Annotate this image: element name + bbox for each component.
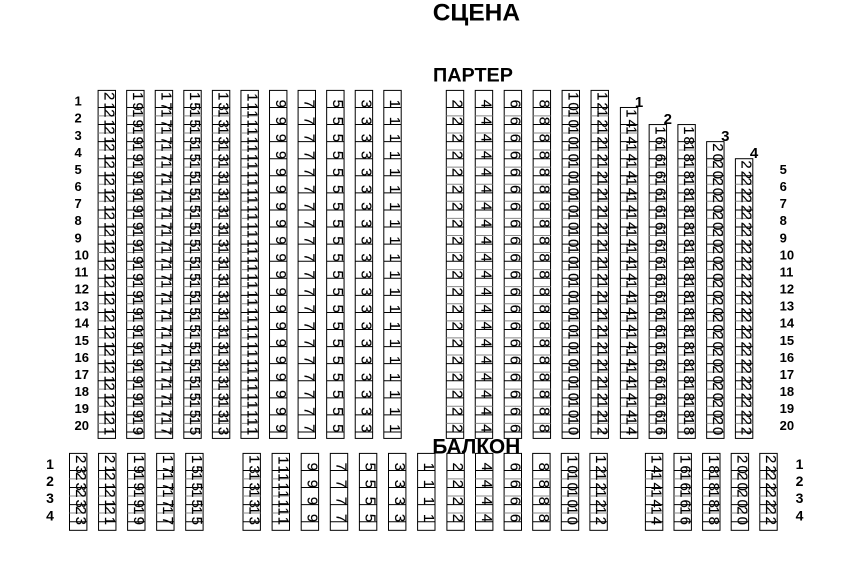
svg-text:16: 16: [651, 417, 668, 438]
svg-text:7: 7: [300, 168, 317, 178]
svg-text:9: 9: [272, 185, 289, 195]
svg-text:4: 4: [750, 145, 759, 162]
svg-text:7: 7: [333, 480, 350, 490]
svg-text:7: 7: [333, 463, 350, 473]
svg-text:6: 6: [507, 253, 524, 263]
svg-text:7: 7: [300, 185, 317, 195]
svg-text:6: 6: [507, 356, 524, 366]
svg-text:5: 5: [362, 463, 379, 473]
svg-text:4: 4: [478, 407, 495, 417]
svg-text:18: 18: [705, 506, 722, 527]
svg-text:9: 9: [272, 117, 289, 127]
svg-text:4: 4: [478, 463, 495, 473]
svg-text:5: 5: [75, 162, 82, 177]
svg-text:5: 5: [329, 322, 346, 332]
svg-text:2: 2: [449, 134, 466, 144]
svg-text:19: 19: [129, 417, 146, 438]
svg-text:6: 6: [507, 219, 524, 229]
svg-text:2: 2: [449, 356, 466, 366]
svg-text:4: 4: [478, 373, 495, 383]
svg-text:5: 5: [329, 390, 346, 400]
svg-text:2: 2: [449, 322, 466, 332]
svg-text:6: 6: [507, 100, 524, 110]
svg-text:3: 3: [46, 490, 54, 506]
svg-text:9: 9: [272, 270, 289, 280]
svg-text:9: 9: [272, 168, 289, 178]
svg-text:1: 1: [386, 117, 403, 127]
svg-text:17: 17: [780, 367, 794, 382]
svg-text:3: 3: [75, 128, 82, 143]
svg-text:9: 9: [272, 407, 289, 417]
svg-text:1: 1: [635, 94, 643, 111]
svg-text:2: 2: [46, 473, 54, 489]
svg-text:6: 6: [507, 151, 524, 161]
svg-text:1: 1: [386, 390, 403, 400]
svg-text:2: 2: [449, 390, 466, 400]
svg-text:4: 4: [796, 507, 804, 523]
svg-text:9: 9: [272, 100, 289, 110]
svg-text:1: 1: [796, 456, 804, 472]
svg-text:1: 1: [386, 236, 403, 246]
svg-text:1: 1: [386, 100, 403, 110]
svg-text:4: 4: [478, 219, 495, 229]
svg-text:4: 4: [478, 480, 495, 490]
svg-text:19: 19: [130, 506, 147, 527]
svg-text:11: 11: [780, 264, 794, 279]
svg-text:16: 16: [780, 350, 794, 365]
svg-text:7: 7: [300, 236, 317, 246]
svg-text:7: 7: [300, 219, 317, 229]
svg-text:5: 5: [329, 424, 346, 434]
svg-text:4: 4: [478, 288, 495, 298]
svg-text:4: 4: [478, 168, 495, 178]
svg-text:2: 2: [449, 424, 466, 434]
svg-text:7: 7: [300, 253, 317, 263]
svg-text:5: 5: [329, 202, 346, 212]
svg-text:7: 7: [300, 407, 317, 417]
svg-text:4: 4: [478, 339, 495, 349]
svg-text:3: 3: [358, 185, 375, 195]
svg-text:2: 2: [449, 270, 466, 280]
svg-text:9: 9: [272, 134, 289, 144]
svg-text:3: 3: [358, 407, 375, 417]
svg-text:7: 7: [300, 151, 317, 161]
svg-text:7: 7: [300, 305, 317, 315]
svg-text:9: 9: [272, 339, 289, 349]
svg-text:3: 3: [358, 134, 375, 144]
svg-text:1: 1: [46, 456, 54, 472]
svg-text:5: 5: [329, 373, 346, 383]
svg-text:4: 4: [478, 100, 495, 110]
svg-text:5: 5: [329, 151, 346, 161]
svg-text:4: 4: [478, 236, 495, 246]
svg-text:3: 3: [358, 236, 375, 246]
svg-text:12: 12: [75, 282, 89, 297]
svg-text:6: 6: [507, 424, 524, 434]
svg-text:2: 2: [449, 407, 466, 417]
svg-text:14: 14: [780, 316, 795, 331]
svg-text:4: 4: [478, 424, 495, 434]
svg-text:8: 8: [535, 168, 552, 178]
svg-text:3: 3: [721, 128, 729, 145]
svg-text:14: 14: [623, 417, 640, 438]
svg-text:5: 5: [329, 253, 346, 263]
svg-text:8: 8: [535, 424, 552, 434]
svg-text:3: 3: [358, 339, 375, 349]
svg-text:9: 9: [304, 463, 321, 473]
svg-text:7: 7: [75, 196, 82, 211]
svg-text:1: 1: [386, 151, 403, 161]
svg-text:8: 8: [535, 100, 552, 110]
svg-text:10: 10: [780, 247, 794, 262]
svg-text:18: 18: [780, 384, 794, 399]
svg-text:6: 6: [507, 168, 524, 178]
svg-text:14: 14: [75, 316, 90, 331]
svg-text:8: 8: [535, 497, 552, 507]
svg-text:3: 3: [358, 424, 375, 434]
svg-text:22: 22: [738, 417, 755, 438]
svg-text:3: 3: [358, 253, 375, 263]
svg-text:8: 8: [535, 339, 552, 349]
svg-text:5: 5: [329, 134, 346, 144]
svg-text:3: 3: [358, 219, 375, 229]
svg-text:20: 20: [75, 418, 89, 433]
svg-text:6: 6: [506, 514, 523, 524]
svg-text:8: 8: [535, 514, 552, 524]
svg-text:12: 12: [780, 282, 794, 297]
svg-text:5: 5: [329, 100, 346, 110]
svg-text:8: 8: [535, 373, 552, 383]
svg-text:7: 7: [300, 322, 317, 332]
svg-text:9: 9: [272, 322, 289, 332]
svg-text:3: 3: [358, 288, 375, 298]
svg-text:3: 3: [358, 202, 375, 212]
svg-text:18: 18: [680, 417, 697, 438]
svg-text:3: 3: [358, 390, 375, 400]
svg-text:1: 1: [386, 202, 403, 212]
svg-text:9: 9: [272, 151, 289, 161]
svg-text:8: 8: [535, 480, 552, 490]
svg-text:5: 5: [329, 117, 346, 127]
svg-text:15: 15: [188, 506, 205, 527]
svg-text:1: 1: [386, 373, 403, 383]
svg-text:10: 10: [564, 506, 581, 527]
svg-text:3: 3: [358, 151, 375, 161]
svg-text:6: 6: [506, 497, 523, 507]
svg-text:7: 7: [300, 373, 317, 383]
svg-text:8: 8: [535, 463, 552, 473]
svg-text:4: 4: [46, 507, 54, 523]
svg-text:7: 7: [300, 100, 317, 110]
svg-text:1: 1: [386, 288, 403, 298]
svg-text:4: 4: [478, 134, 495, 144]
svg-text:9: 9: [272, 253, 289, 263]
svg-text:2: 2: [449, 480, 466, 490]
svg-text:5: 5: [329, 407, 346, 417]
svg-text:8: 8: [535, 219, 552, 229]
svg-text:8: 8: [535, 407, 552, 417]
svg-text:6: 6: [507, 390, 524, 400]
svg-text:6: 6: [507, 236, 524, 246]
svg-text:17: 17: [159, 506, 176, 527]
svg-text:БАЛКОН: БАЛКОН: [432, 436, 520, 459]
svg-text:2: 2: [664, 111, 672, 128]
svg-text:20: 20: [734, 506, 751, 527]
svg-text:9: 9: [304, 497, 321, 507]
svg-text:1: 1: [386, 322, 403, 332]
svg-text:6: 6: [507, 288, 524, 298]
svg-text:3: 3: [796, 490, 804, 506]
svg-text:5: 5: [329, 339, 346, 349]
svg-text:7: 7: [300, 117, 317, 127]
svg-text:6: 6: [507, 270, 524, 280]
svg-text:6: 6: [507, 407, 524, 417]
svg-text:3: 3: [358, 305, 375, 315]
svg-text:7: 7: [300, 202, 317, 212]
svg-text:15: 15: [780, 333, 794, 348]
svg-text:3: 3: [358, 117, 375, 127]
svg-text:7: 7: [300, 134, 317, 144]
svg-text:5: 5: [780, 162, 787, 177]
svg-text:2: 2: [449, 373, 466, 383]
svg-text:5: 5: [362, 514, 379, 524]
svg-text:2: 2: [449, 463, 466, 473]
svg-text:1: 1: [386, 185, 403, 195]
svg-text:3: 3: [358, 168, 375, 178]
svg-text:8: 8: [535, 253, 552, 263]
svg-text:1: 1: [386, 253, 403, 263]
svg-text:7: 7: [333, 514, 350, 524]
svg-text:8: 8: [535, 288, 552, 298]
svg-text:5: 5: [329, 168, 346, 178]
svg-text:4: 4: [75, 145, 83, 160]
svg-text:3: 3: [391, 497, 408, 507]
svg-text:7: 7: [333, 497, 350, 507]
svg-text:2: 2: [449, 514, 466, 524]
svg-text:21: 21: [100, 417, 117, 438]
svg-text:1: 1: [420, 480, 437, 490]
svg-text:9: 9: [272, 236, 289, 246]
svg-text:19: 19: [75, 401, 89, 416]
svg-text:3: 3: [358, 270, 375, 280]
svg-text:8: 8: [535, 202, 552, 212]
svg-text:13: 13: [215, 417, 232, 438]
svg-text:1: 1: [386, 424, 403, 434]
svg-text:8: 8: [535, 134, 552, 144]
svg-text:8: 8: [535, 151, 552, 161]
svg-text:4: 4: [478, 253, 495, 263]
svg-text:2: 2: [796, 473, 804, 489]
svg-text:2: 2: [449, 219, 466, 229]
svg-text:8: 8: [535, 356, 552, 366]
svg-text:2: 2: [449, 151, 466, 161]
svg-text:8: 8: [75, 213, 82, 228]
svg-text:3: 3: [358, 356, 375, 366]
svg-text:23: 23: [72, 506, 89, 527]
svg-text:7: 7: [300, 288, 317, 298]
svg-text:1: 1: [386, 305, 403, 315]
svg-text:5: 5: [329, 356, 346, 366]
svg-text:1: 1: [386, 270, 403, 280]
svg-text:5: 5: [329, 270, 346, 280]
svg-text:10: 10: [75, 247, 89, 262]
svg-text:6: 6: [75, 179, 82, 194]
svg-text:1: 1: [420, 463, 437, 473]
svg-text:6: 6: [507, 185, 524, 195]
svg-text:1: 1: [386, 407, 403, 417]
svg-text:6: 6: [507, 134, 524, 144]
svg-text:3: 3: [358, 322, 375, 332]
svg-text:1: 1: [420, 497, 437, 507]
svg-text:5: 5: [329, 305, 346, 315]
svg-text:14: 14: [648, 506, 665, 527]
svg-text:2: 2: [449, 100, 466, 110]
svg-text:7: 7: [300, 270, 317, 280]
svg-text:16: 16: [75, 350, 89, 365]
svg-text:3: 3: [391, 480, 408, 490]
svg-text:4: 4: [478, 322, 495, 332]
svg-text:2: 2: [449, 497, 466, 507]
svg-text:7: 7: [300, 339, 317, 349]
svg-text:2: 2: [449, 185, 466, 195]
svg-text:5: 5: [329, 185, 346, 195]
svg-text:22: 22: [762, 506, 779, 527]
svg-text:5: 5: [362, 497, 379, 507]
svg-text:9: 9: [272, 356, 289, 366]
svg-text:4: 4: [478, 202, 495, 212]
svg-text:7: 7: [300, 356, 317, 366]
svg-text:1: 1: [386, 219, 403, 229]
svg-text:8: 8: [535, 322, 552, 332]
svg-text:6: 6: [507, 202, 524, 212]
svg-text:17: 17: [158, 417, 175, 438]
svg-text:6: 6: [507, 305, 524, 315]
svg-text:5: 5: [329, 288, 346, 298]
svg-text:1: 1: [386, 356, 403, 366]
svg-text:4: 4: [478, 514, 495, 524]
svg-text:2: 2: [449, 253, 466, 263]
svg-text:12: 12: [592, 506, 609, 527]
svg-text:2: 2: [449, 305, 466, 315]
svg-text:10: 10: [564, 417, 581, 438]
svg-text:2: 2: [75, 111, 82, 126]
svg-text:20: 20: [709, 417, 726, 438]
svg-text:5: 5: [329, 236, 346, 246]
svg-text:11: 11: [75, 264, 89, 279]
svg-text:17: 17: [75, 367, 89, 382]
svg-text:8: 8: [780, 213, 787, 228]
svg-text:4: 4: [478, 185, 495, 195]
svg-text:4: 4: [478, 305, 495, 315]
svg-text:1: 1: [420, 514, 437, 524]
svg-text:9: 9: [272, 219, 289, 229]
svg-text:2: 2: [449, 339, 466, 349]
svg-text:7: 7: [300, 424, 317, 434]
svg-text:9: 9: [272, 288, 289, 298]
svg-text:9: 9: [780, 230, 787, 245]
svg-text:6: 6: [507, 322, 524, 332]
svg-text:1: 1: [386, 134, 403, 144]
svg-text:12: 12: [593, 417, 610, 438]
svg-text:2: 2: [449, 168, 466, 178]
svg-text:СЦЕНА: СЦЕНА: [433, 0, 521, 26]
svg-text:7: 7: [780, 196, 787, 211]
svg-text:2: 2: [449, 117, 466, 127]
svg-text:1: 1: [386, 339, 403, 349]
svg-text:6: 6: [507, 373, 524, 383]
svg-text:1: 1: [386, 168, 403, 178]
svg-text:8: 8: [535, 305, 552, 315]
svg-text:3: 3: [358, 100, 375, 110]
svg-text:11: 11: [274, 507, 291, 527]
svg-text:3: 3: [358, 373, 375, 383]
svg-text:9: 9: [272, 390, 289, 400]
svg-text:1: 1: [75, 94, 82, 109]
svg-text:4: 4: [478, 390, 495, 400]
svg-text:9: 9: [272, 305, 289, 315]
svg-text:16: 16: [676, 506, 693, 527]
svg-text:8: 8: [535, 185, 552, 195]
svg-text:13: 13: [245, 506, 262, 527]
svg-text:9: 9: [304, 480, 321, 490]
svg-text:19: 19: [780, 401, 794, 416]
svg-text:4: 4: [478, 356, 495, 366]
svg-text:4: 4: [478, 151, 495, 161]
svg-text:2: 2: [449, 288, 466, 298]
svg-text:6: 6: [506, 480, 523, 490]
svg-text:4: 4: [478, 117, 495, 127]
svg-text:9: 9: [75, 230, 82, 245]
svg-text:8: 8: [535, 236, 552, 246]
svg-text:3: 3: [391, 514, 408, 524]
svg-text:15: 15: [186, 417, 203, 438]
svg-text:8: 8: [535, 390, 552, 400]
svg-text:6: 6: [507, 339, 524, 349]
svg-text:8: 8: [535, 270, 552, 280]
svg-text:11: 11: [243, 418, 260, 438]
svg-text:8: 8: [535, 117, 552, 127]
svg-text:6: 6: [780, 179, 787, 194]
svg-text:4: 4: [478, 270, 495, 280]
svg-text:6: 6: [506, 463, 523, 473]
svg-text:9: 9: [272, 202, 289, 212]
svg-text:9: 9: [304, 514, 321, 524]
svg-text:5: 5: [362, 480, 379, 490]
svg-text:ПАРТЕР: ПАРТЕР: [433, 64, 513, 86]
svg-text:4: 4: [478, 497, 495, 507]
svg-text:2: 2: [449, 202, 466, 212]
svg-text:9: 9: [272, 424, 289, 434]
svg-text:13: 13: [75, 299, 89, 314]
svg-text:18: 18: [75, 384, 89, 399]
svg-text:15: 15: [75, 333, 89, 348]
svg-text:2: 2: [449, 236, 466, 246]
svg-text:5: 5: [329, 219, 346, 229]
svg-text:13: 13: [780, 299, 794, 314]
svg-text:9: 9: [272, 373, 289, 383]
svg-text:7: 7: [300, 390, 317, 400]
svg-text:21: 21: [101, 506, 118, 527]
svg-text:20: 20: [780, 418, 794, 433]
svg-text:6: 6: [507, 117, 524, 127]
svg-text:3: 3: [391, 463, 408, 473]
